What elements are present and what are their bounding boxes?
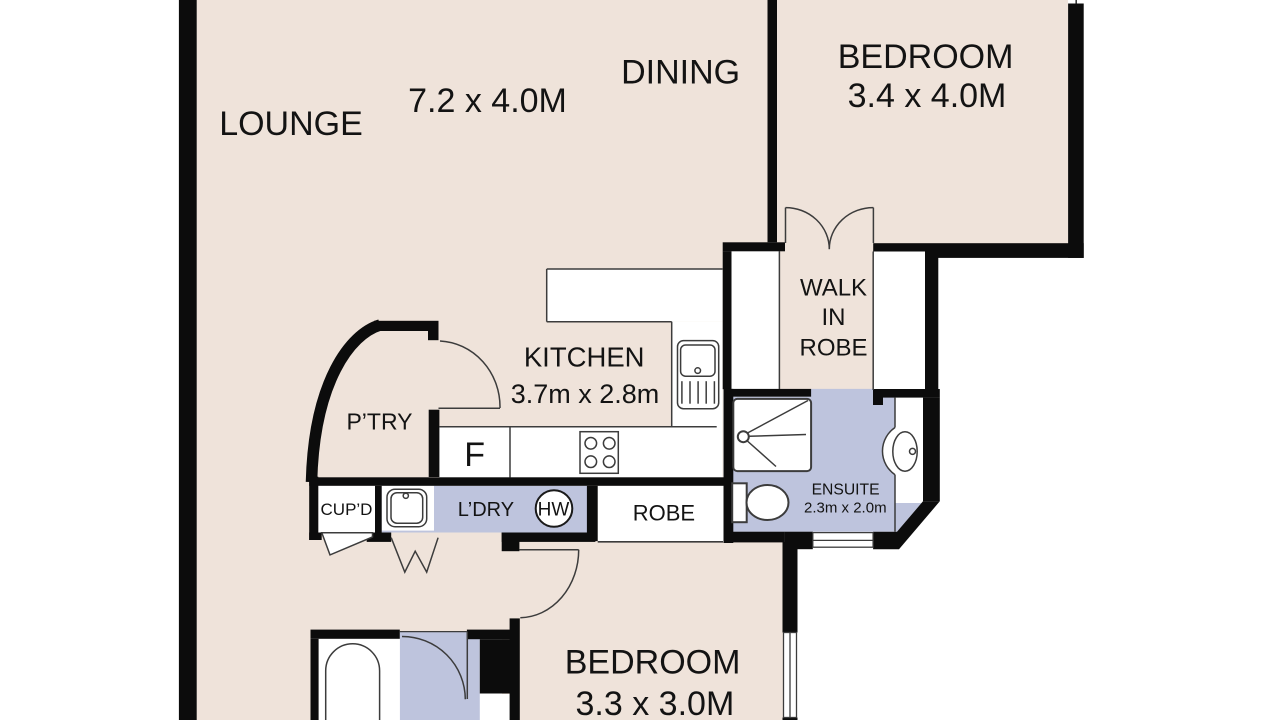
- svg-text:WALK: WALK: [800, 274, 867, 301]
- svg-text:KITCHEN: KITCHEN: [524, 342, 645, 373]
- svg-text:ENSUITE: ENSUITE: [812, 481, 880, 498]
- svg-text:3.7m x 2.8m: 3.7m x 2.8m: [511, 379, 660, 409]
- svg-text:P’TRY: P’TRY: [346, 409, 412, 435]
- svg-text:HW: HW: [538, 499, 570, 520]
- svg-text:L’DRY: L’DRY: [458, 499, 514, 521]
- svg-text:IN: IN: [822, 304, 846, 331]
- svg-text:BEDROOM: BEDROOM: [838, 38, 1014, 76]
- svg-text:3.4 x 4.0M: 3.4 x 4.0M: [848, 77, 1007, 115]
- svg-text:ROBE: ROBE: [799, 334, 867, 361]
- svg-text:LOUNGE: LOUNGE: [219, 105, 363, 143]
- svg-text:BEDROOM: BEDROOM: [565, 644, 741, 682]
- svg-text:ROBE: ROBE: [633, 501, 695, 526]
- svg-text:CUP’D: CUP’D: [321, 500, 373, 519]
- svg-text:F: F: [464, 436, 485, 474]
- svg-text:2.3m x 2.0m: 2.3m x 2.0m: [804, 500, 887, 517]
- svg-text:DINING: DINING: [621, 53, 740, 91]
- svg-text:7.2 x 4.0M: 7.2 x 4.0M: [408, 82, 567, 120]
- svg-text:3.3 x 3.0M: 3.3 x 3.0M: [576, 685, 735, 720]
